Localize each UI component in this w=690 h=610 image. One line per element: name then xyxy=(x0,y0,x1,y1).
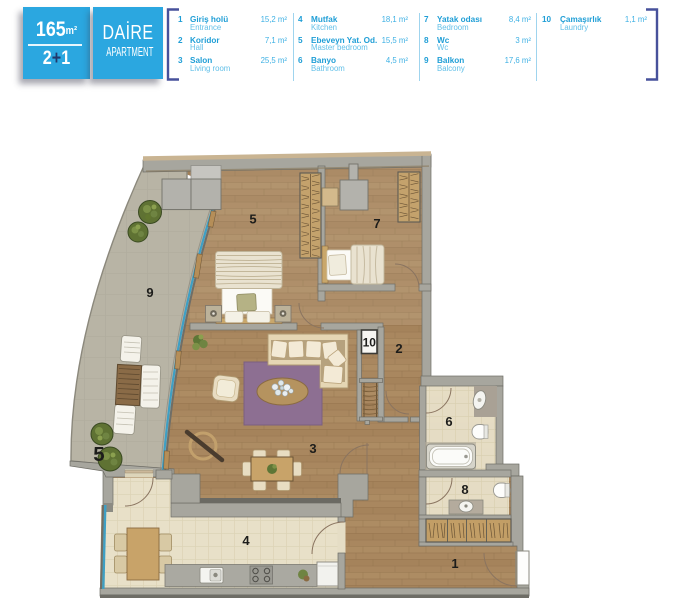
svg-text:7: 7 xyxy=(373,216,380,231)
svg-text:10: 10 xyxy=(363,336,377,350)
svg-text:5: 5 xyxy=(249,212,256,227)
svg-text:4: 4 xyxy=(242,533,250,548)
svg-text:5: 5 xyxy=(93,443,104,466)
svg-text:6: 6 xyxy=(445,414,452,429)
svg-text:8: 8 xyxy=(461,482,468,497)
svg-text:2: 2 xyxy=(395,341,402,356)
svg-text:3: 3 xyxy=(309,441,316,456)
svg-text:1: 1 xyxy=(451,556,458,571)
svg-text:9: 9 xyxy=(146,285,153,300)
